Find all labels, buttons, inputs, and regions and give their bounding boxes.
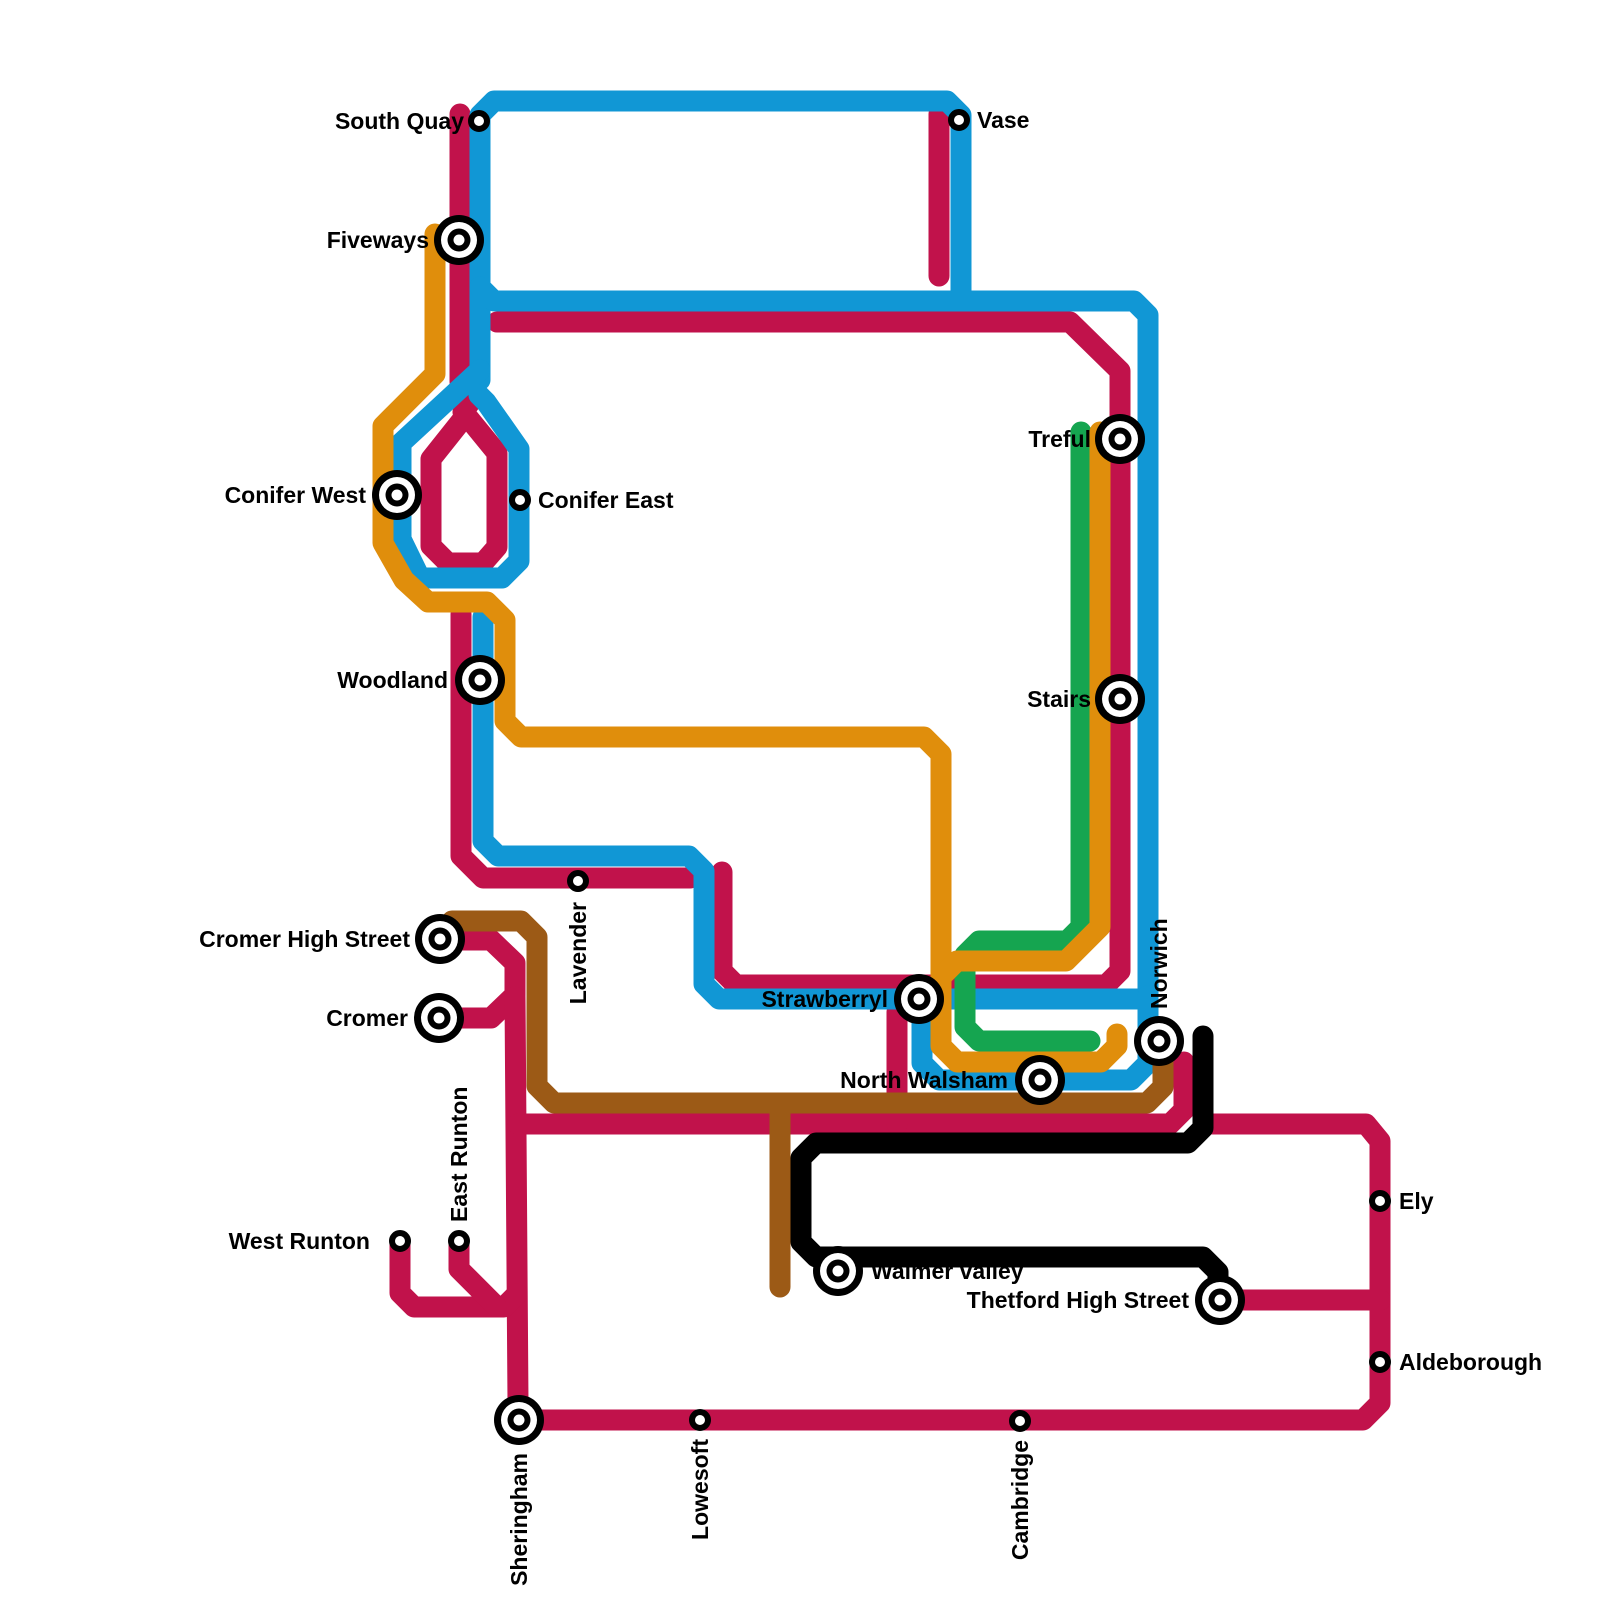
station-marker-core [434,1013,445,1024]
station-woodland[interactable]: Woodland [337,655,505,705]
route-line-blue-top-rectangle [480,101,961,380]
station-cambridge[interactable]: Cambridge [1007,1413,1033,1560]
station-marker-core [1115,694,1126,705]
station-label-thetford-high-street: Thetford High Street [967,1287,1190,1313]
station-lowesoft[interactable]: Lowesoft [687,1412,713,1540]
station-marker [392,1233,408,1249]
station-marker-core [454,235,465,246]
station-label-ely: Ely [1399,1188,1434,1214]
station-cromer-high-street[interactable]: Cromer High Street [199,914,465,964]
route-line-crimson-east-runton [459,1241,496,1306]
station-label-lowesoft: Lowesoft [687,1439,713,1540]
station-sheringham[interactable]: Sheringham [494,1395,544,1586]
station-marker [1372,1193,1388,1209]
station-label-walmer-valley: Walmer valley [871,1258,1024,1284]
station-label-conifer-west: Conifer West [225,482,367,508]
station-marker-core [914,994,925,1005]
station-label-fiveways: Fiveways [327,227,429,253]
station-label-strawberryl: Strawberryl [761,986,888,1012]
station-lavender[interactable]: Lavender [565,873,591,1004]
station-conifer-west[interactable]: Conifer West [225,470,422,520]
station-marker-core [833,1266,844,1277]
station-marker [570,873,586,889]
transit-map: South QuayVaseFivewaysTrefulConifer West… [0,0,1600,1600]
station-label-aldeborough: Aldeborough [1399,1349,1542,1375]
station-label-north-walsham: North Walsham [840,1067,1008,1093]
station-label-cromer: Cromer [326,1005,408,1031]
station-marker [471,113,487,129]
station-marker-core [1154,1036,1165,1047]
station-marker-core [514,1415,525,1426]
station-marker [951,112,967,128]
station-marker [451,1233,467,1249]
station-marker [1012,1413,1028,1429]
station-label-norwich: Norwich [1146,918,1172,1009]
route-line-crimson-conifer-loop [431,415,497,563]
station-label-woodland: Woodland [337,667,448,693]
route-line-blue-cross-town [480,287,1148,999]
station-conifer-east[interactable]: Conifer East [512,487,674,513]
station-label-east-runton: East Runton [446,1087,472,1222]
station-marker-core [475,675,486,686]
station-marker-core [435,934,446,945]
station-label-treful: Treful [1028,426,1091,452]
station-label-lavender: Lavender [565,902,591,1004]
station-ely[interactable]: Ely [1372,1188,1434,1214]
station-west-runton[interactable]: West Runton [229,1228,408,1254]
station-label-west-runton: West Runton [229,1228,370,1254]
station-label-cromer-high-street: Cromer High Street [199,926,410,952]
station-label-cambridge: Cambridge [1007,1440,1033,1560]
station-label-sheringham: Sheringham [506,1453,532,1586]
station-marker-core [392,490,403,501]
station-fiveways[interactable]: Fiveways [327,215,484,265]
station-label-stairs: Stairs [1027,686,1091,712]
station-aldeborough[interactable]: Aldeborough [1372,1349,1542,1375]
station-cromer[interactable]: Cromer [326,993,464,1043]
station-label-conifer-east: Conifer East [538,487,674,513]
station-marker [692,1412,708,1428]
station-label-vase: Vase [977,107,1029,133]
transit-map-canvas: South QuayVaseFivewaysTrefulConifer West… [0,0,1600,1600]
station-label-south-quay: South Quay [335,108,464,134]
station-marker-core [1215,1295,1226,1306]
station-marker [1372,1354,1388,1370]
station-marker [512,492,528,508]
station-east-runton[interactable]: East Runton [446,1087,472,1249]
station-marker-core [1035,1075,1046,1086]
station-vase[interactable]: Vase [951,107,1029,133]
station-marker-core [1115,434,1126,445]
